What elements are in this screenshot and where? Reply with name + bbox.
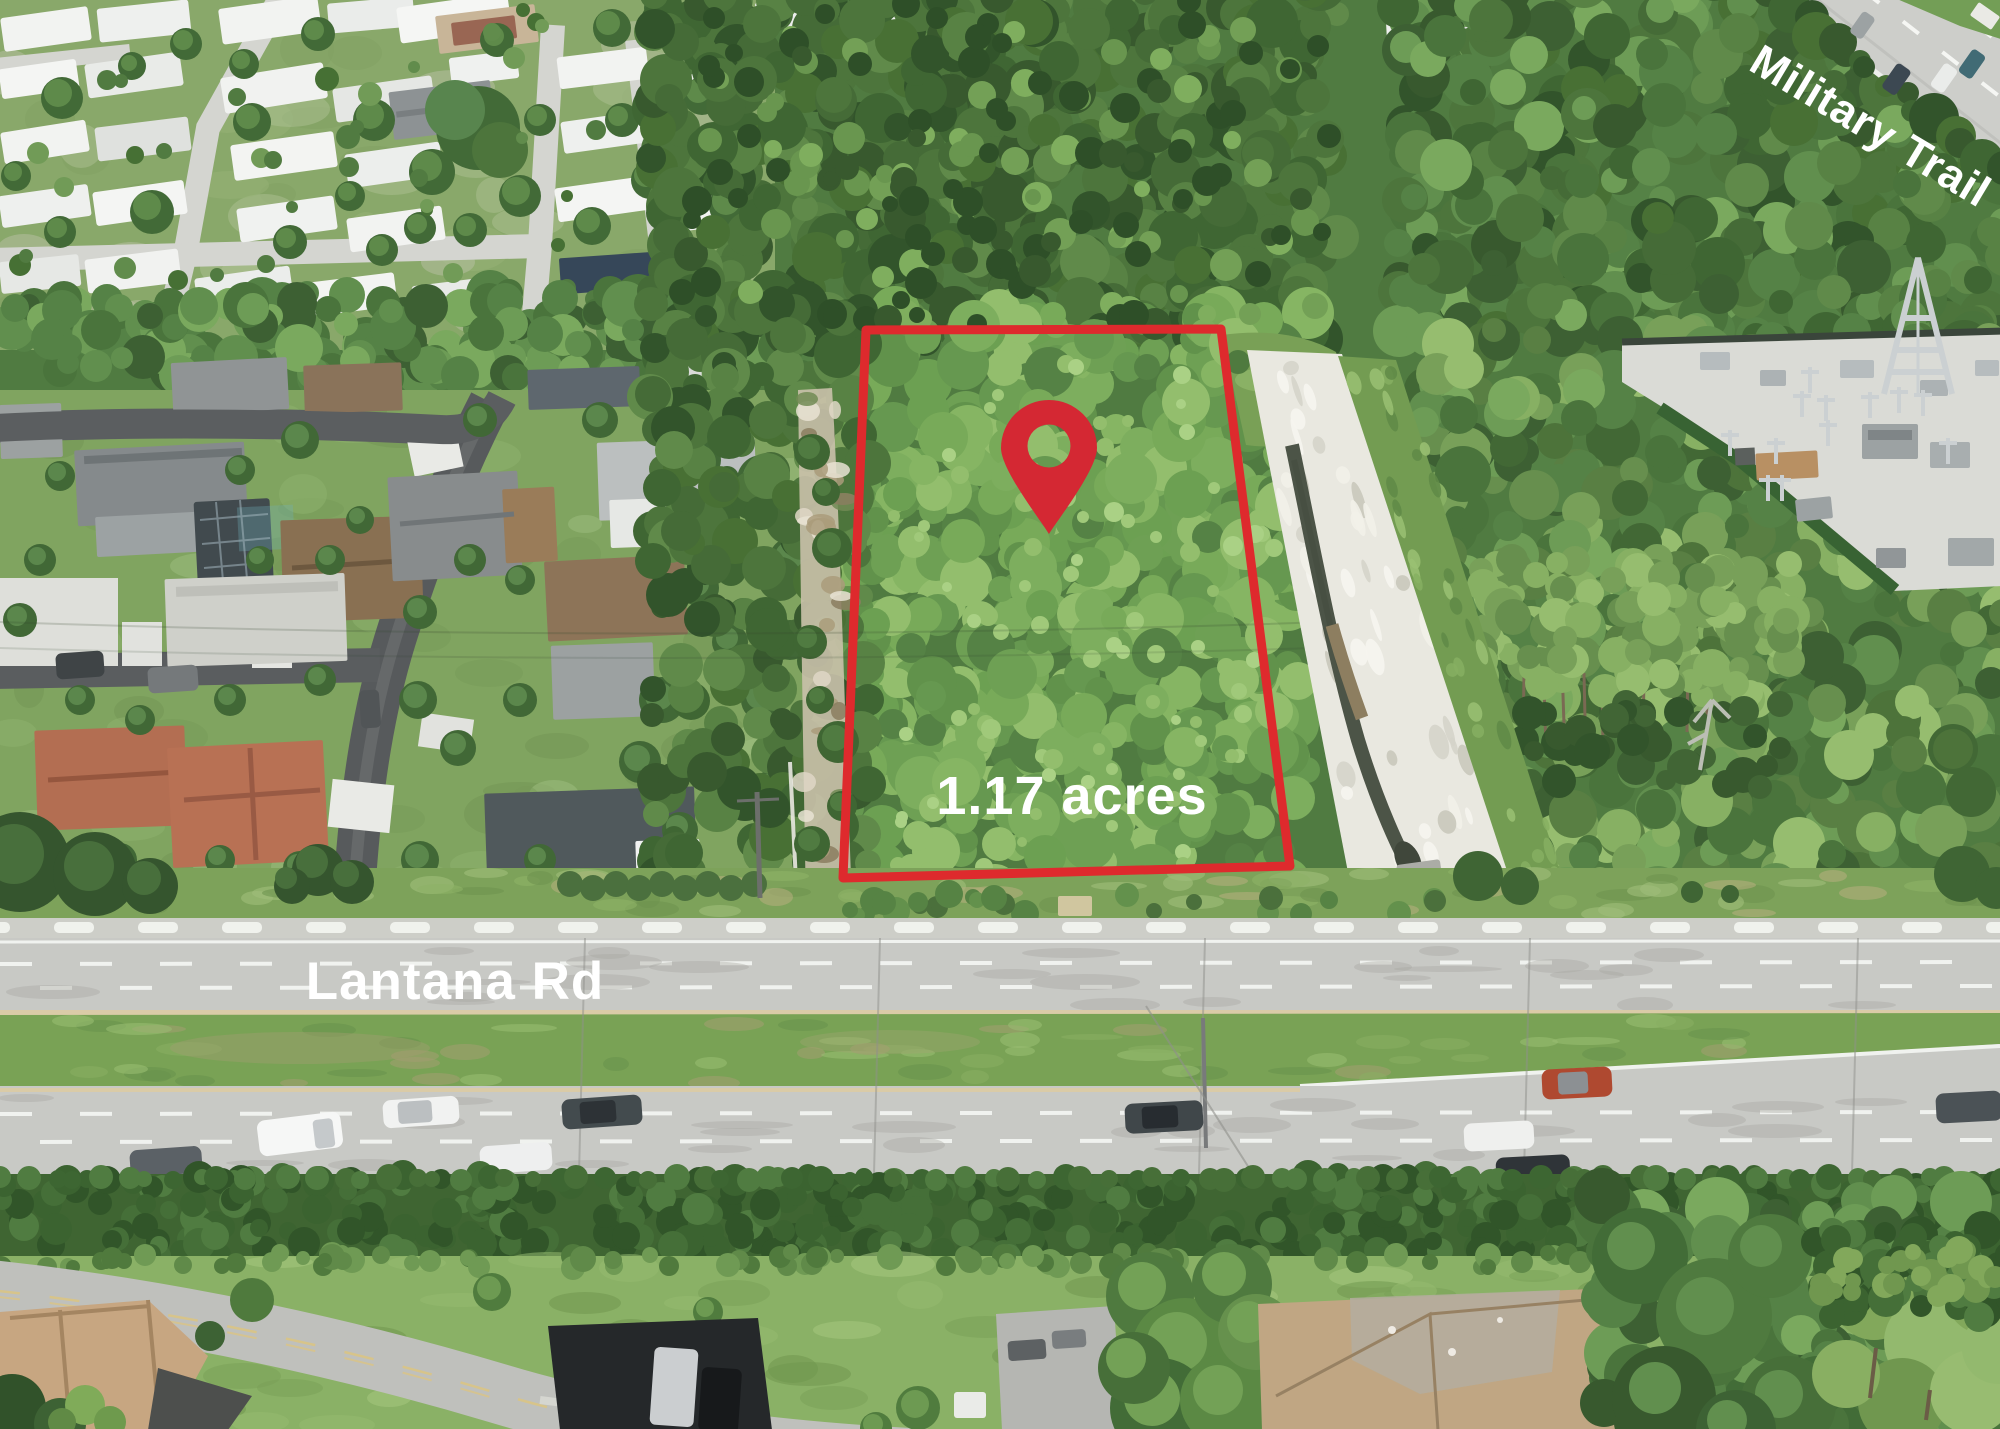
svg-text:1.17 acres: 1.17 acres	[936, 766, 1207, 826]
svg-text:Lantana Rd: Lantana Rd	[306, 952, 605, 1011]
